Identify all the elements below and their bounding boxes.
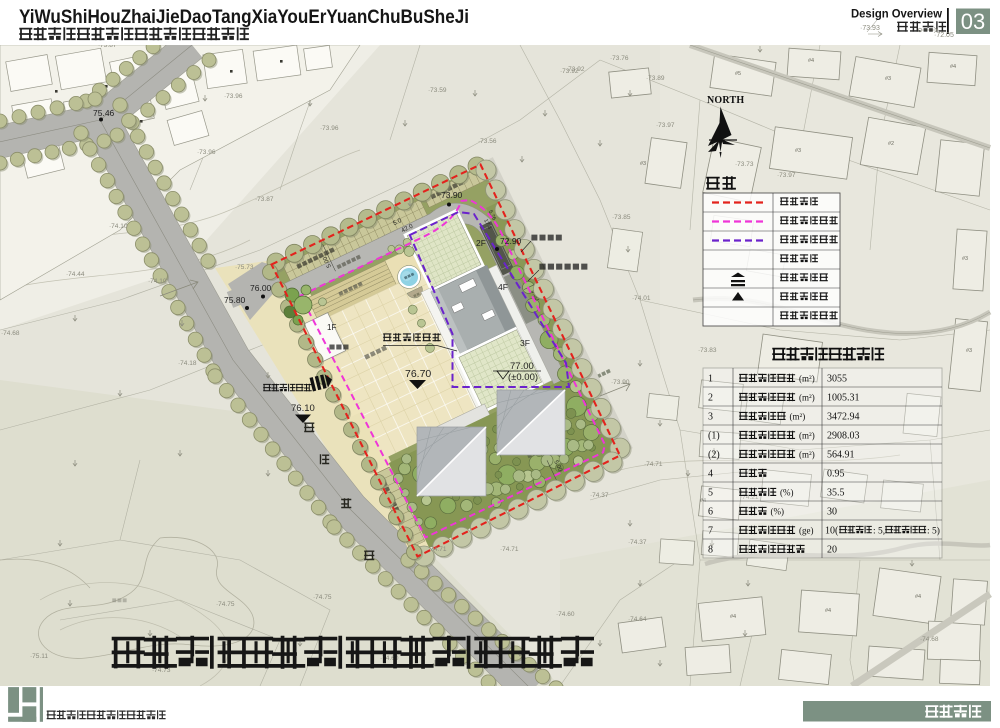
svg-text:(m²): (m²)	[790, 412, 806, 422]
svg-text:(m²): (m²)	[799, 393, 815, 403]
svg-text:2F: 2F	[476, 238, 486, 248]
svg-text:2: 2	[708, 393, 713, 404]
svg-text:·74.37: ·74.37	[590, 492, 609, 499]
svg-text:(m²): (m²)	[799, 374, 815, 384]
svg-text:72.90: 72.90	[500, 236, 522, 246]
svg-text:03: 03	[961, 9, 985, 34]
svg-text:·74.64: ·74.64	[628, 616, 647, 623]
svg-text:4: 4	[708, 469, 713, 480]
svg-text:: 5,: : 5,	[873, 527, 885, 537]
svg-text:·73.96: ·73.96	[224, 93, 243, 100]
svg-text:·74.37: ·74.37	[628, 539, 647, 546]
svg-text:(m²): (m²)	[799, 431, 815, 441]
svg-text:·73.92: ·73.92	[566, 66, 585, 73]
svg-text:·75.11: ·75.11	[30, 653, 48, 660]
svg-text:(%): (%)	[771, 507, 785, 517]
svg-text:·74.68: ·74.68	[920, 636, 939, 643]
svg-text:#3: #3	[795, 148, 801, 154]
svg-text:10(: 10(	[825, 526, 839, 537]
svg-text:Design Overview: Design Overview	[851, 7, 943, 21]
svg-text:·74.75: ·74.75	[313, 594, 332, 601]
svg-text:3472.94: 3472.94	[827, 412, 860, 423]
svg-text:4F: 4F	[498, 282, 508, 292]
svg-text:77.00: 77.00	[510, 361, 534, 372]
svg-text:·74.60: ·74.60	[556, 611, 575, 618]
svg-text:·73.73: ·73.73	[735, 161, 754, 168]
svg-text:1005.31: 1005.31	[827, 393, 860, 404]
svg-text:#3: #3	[962, 256, 968, 262]
svg-text:·73.96: ·73.96	[320, 125, 339, 132]
svg-text:35.5: 35.5	[827, 488, 845, 499]
svg-text:(ge): (ge)	[799, 526, 814, 536]
svg-text:·72.05: ·72.05	[934, 32, 954, 39]
svg-text:·73.59: ·73.59	[428, 87, 447, 94]
svg-text:5: 5	[708, 488, 713, 499]
svg-text:8: 8	[708, 545, 713, 556]
svg-text:#3: #3	[640, 161, 646, 167]
svg-text:(2): (2)	[708, 450, 720, 461]
svg-text:#4: #4	[730, 614, 736, 620]
svg-text:·74.10: ·74.10	[109, 223, 128, 230]
svg-text:76.10: 76.10	[291, 403, 315, 414]
svg-text:3F: 3F	[520, 338, 530, 348]
svg-text:(±0.00): (±0.00)	[508, 372, 538, 383]
svg-text:·73.89: ·73.89	[646, 75, 665, 82]
svg-text:(%): (%)	[780, 488, 794, 498]
svg-text:#4: #4	[825, 608, 831, 614]
svg-text:(1): (1)	[708, 431, 720, 442]
svg-text:(m²): (m²)	[799, 450, 815, 460]
svg-text:3055: 3055	[827, 374, 847, 385]
svg-text:·74.71: ·74.71	[500, 546, 519, 553]
svg-text:·73.56: ·73.56	[478, 138, 497, 145]
svg-text:·74.18: ·74.18	[178, 360, 197, 367]
svg-text:7: 7	[708, 526, 713, 537]
svg-text:0.95: 0.95	[827, 469, 845, 480]
svg-text:#4: #4	[950, 64, 956, 70]
svg-text:·74.68: ·74.68	[1, 330, 20, 337]
svg-text:·74.44: ·74.44	[66, 271, 85, 278]
svg-text:#3: #3	[885, 76, 891, 82]
svg-text:·73.83: ·73.83	[698, 347, 717, 354]
svg-text:·74.01: ·74.01	[632, 295, 651, 302]
svg-text:76.70: 76.70	[405, 368, 431, 380]
svg-text:#4: #4	[915, 594, 921, 600]
svg-text:30: 30	[827, 507, 837, 518]
svg-text:·75.73: ·75.73	[235, 264, 254, 271]
svg-text:NORTH: NORTH	[707, 95, 744, 106]
svg-text:·73.97: ·73.97	[777, 172, 796, 179]
svg-text:·73.96: ·73.96	[197, 149, 216, 156]
svg-text:#4: #4	[808, 58, 814, 64]
svg-text:6: 6	[708, 507, 713, 518]
svg-text:·74.71: ·74.71	[644, 461, 663, 468]
svg-text:·73.76: ·73.76	[610, 55, 629, 62]
svg-text:#2: #2	[888, 141, 894, 147]
svg-text:75.80: 75.80	[224, 295, 246, 305]
svg-text:YiWuShiHouZhaiJieDaoTangXiaYou: YiWuShiHouZhaiJieDaoTangXiaYouErYuanChuB…	[19, 7, 469, 28]
svg-text:2908.03: 2908.03	[827, 431, 860, 442]
svg-text:20: 20	[827, 545, 837, 556]
svg-text:·73.87: ·73.87	[255, 196, 274, 203]
svg-text:#5: #5	[735, 71, 741, 77]
svg-text:·73.85: ·73.85	[612, 214, 631, 221]
svg-text:·73.97: ·73.97	[656, 122, 675, 129]
svg-text:·74.75: ·74.75	[216, 601, 235, 608]
svg-text:76.00: 76.00	[250, 283, 272, 293]
svg-text:73.90: 73.90	[441, 190, 463, 200]
svg-text:3: 3	[708, 412, 713, 423]
svg-text:564.91: 564.91	[827, 450, 855, 461]
svg-text:: 5): : 5)	[927, 526, 940, 537]
svg-text:·74.71: ·74.71	[428, 546, 447, 553]
svg-text:·74.10: ·74.10	[148, 278, 167, 285]
svg-text:75.46: 75.46	[93, 108, 115, 118]
svg-text:1: 1	[708, 374, 713, 385]
svg-text:1F: 1F	[327, 323, 336, 332]
svg-text:#3: #3	[966, 348, 972, 354]
